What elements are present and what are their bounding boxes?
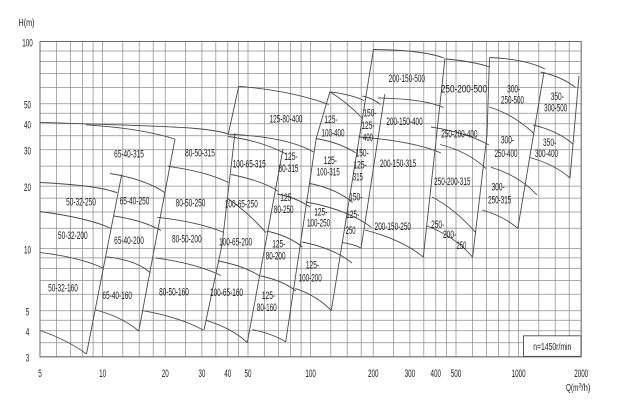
svg-text:125-: 125- — [324, 155, 337, 167]
svg-text:100-250: 100-250 — [307, 218, 330, 230]
svg-text:300-: 300- — [492, 182, 505, 194]
svg-text:65-40-200: 65-40-200 — [114, 235, 144, 247]
svg-text:125-80-400: 125-80-400 — [270, 114, 303, 126]
svg-text:/h): /h) — [582, 382, 591, 394]
svg-text:Q(m: Q(m — [566, 382, 579, 394]
svg-text:100-400: 100-400 — [321, 128, 344, 140]
svg-text:80-315: 80-315 — [279, 163, 299, 175]
svg-text:30: 30 — [24, 146, 31, 158]
svg-text:100-65-160: 100-65-160 — [210, 287, 243, 299]
svg-text:3: 3 — [578, 383, 582, 390]
svg-text:H(m): H(m) — [19, 17, 35, 29]
svg-text:5: 5 — [26, 307, 30, 319]
svg-text:400: 400 — [363, 132, 373, 144]
svg-text:200-150-400: 200-150-400 — [386, 116, 422, 128]
svg-text:5: 5 — [38, 368, 42, 380]
svg-text:80-50-315: 80-50-315 — [185, 147, 215, 159]
svg-text:300-400: 300-400 — [535, 148, 558, 160]
svg-text:250: 250 — [346, 225, 356, 237]
svg-text:65-40-315: 65-40-315 — [114, 149, 144, 161]
svg-text:200-150-250: 200-150-250 — [375, 221, 411, 233]
svg-text:20: 20 — [24, 182, 31, 194]
svg-text:125-: 125- — [314, 206, 327, 218]
svg-text:250-200-400: 250-200-400 — [441, 129, 477, 141]
svg-text:200: 200 — [368, 368, 379, 380]
svg-text:250-400: 250-400 — [494, 148, 517, 160]
svg-text:250-315: 250-315 — [488, 194, 511, 206]
svg-text:4: 4 — [26, 327, 30, 339]
svg-text:100-65-250: 100-65-250 — [225, 198, 258, 210]
svg-text:300-: 300- — [501, 135, 514, 147]
svg-text:80-250: 80-250 — [274, 204, 294, 216]
svg-text:125-: 125- — [284, 151, 297, 163]
svg-text:40: 40 — [224, 368, 231, 380]
svg-text:150-: 150- — [349, 192, 362, 204]
svg-text:300: 300 — [405, 368, 416, 380]
svg-text:200-150-315: 200-150-315 — [380, 158, 416, 170]
svg-text:50-32-250: 50-32-250 — [66, 197, 96, 209]
svg-text:125-: 125- — [306, 259, 319, 271]
svg-text:100-200: 100-200 — [299, 272, 322, 284]
svg-text:65-40-250: 65-40-250 — [120, 196, 150, 208]
svg-text:20: 20 — [162, 368, 169, 380]
svg-text:125-: 125- — [361, 120, 374, 132]
svg-text:250-200-500: 250-200-500 — [441, 84, 487, 96]
svg-text:80-50-200: 80-50-200 — [172, 233, 202, 245]
svg-text:n=1450r/min: n=1450r/min — [533, 342, 571, 353]
svg-text:125-: 125- — [280, 192, 293, 204]
svg-text:125-: 125- — [262, 290, 275, 302]
svg-text:200-: 200- — [443, 229, 456, 241]
svg-text:250-500: 250-500 — [501, 95, 524, 107]
svg-text:65-40-160: 65-40-160 — [102, 290, 132, 302]
svg-text:50-32-160: 50-32-160 — [48, 283, 78, 295]
svg-text:80-200: 80-200 — [266, 251, 286, 263]
svg-text:100-65-200: 100-65-200 — [219, 237, 252, 249]
svg-text:400: 400 — [431, 368, 442, 380]
svg-text:50-32-200: 50-32-200 — [58, 230, 88, 242]
svg-text:125-: 125- — [354, 160, 367, 172]
svg-text:150-: 150- — [356, 148, 369, 160]
svg-text:100: 100 — [305, 368, 316, 380]
svg-text:125-: 125- — [346, 209, 359, 221]
svg-text:125-: 125- — [272, 238, 285, 250]
svg-text:100-65-315: 100-65-315 — [233, 159, 266, 171]
svg-text:250: 250 — [456, 240, 466, 252]
svg-text:10: 10 — [24, 244, 31, 256]
svg-text:100: 100 — [22, 37, 33, 49]
svg-text:300-: 300- — [507, 83, 520, 95]
svg-text:250-200-315: 250-200-315 — [434, 176, 470, 188]
svg-text:80-160: 80-160 — [257, 302, 277, 314]
svg-text:40: 40 — [24, 120, 31, 132]
svg-text:315: 315 — [353, 172, 363, 184]
svg-text:1000: 1000 — [512, 368, 526, 380]
svg-text:500: 500 — [451, 368, 462, 380]
svg-text:150-: 150- — [363, 108, 376, 120]
svg-text:200-150-500: 200-150-500 — [389, 73, 425, 85]
svg-text:2000: 2000 — [574, 368, 588, 380]
svg-text:10: 10 — [99, 368, 106, 380]
svg-text:30: 30 — [198, 368, 205, 380]
svg-text:80-50-250: 80-50-250 — [176, 198, 206, 210]
svg-text:50: 50 — [24, 100, 31, 112]
svg-text:300-500: 300-500 — [544, 102, 567, 114]
svg-text:50: 50 — [245, 368, 252, 380]
svg-text:80-50-160: 80-50-160 — [159, 287, 189, 299]
svg-text:100-315: 100-315 — [317, 166, 340, 178]
svg-text:125-: 125- — [324, 114, 337, 126]
svg-text:350-: 350- — [551, 91, 564, 103]
svg-text:3: 3 — [26, 353, 30, 365]
